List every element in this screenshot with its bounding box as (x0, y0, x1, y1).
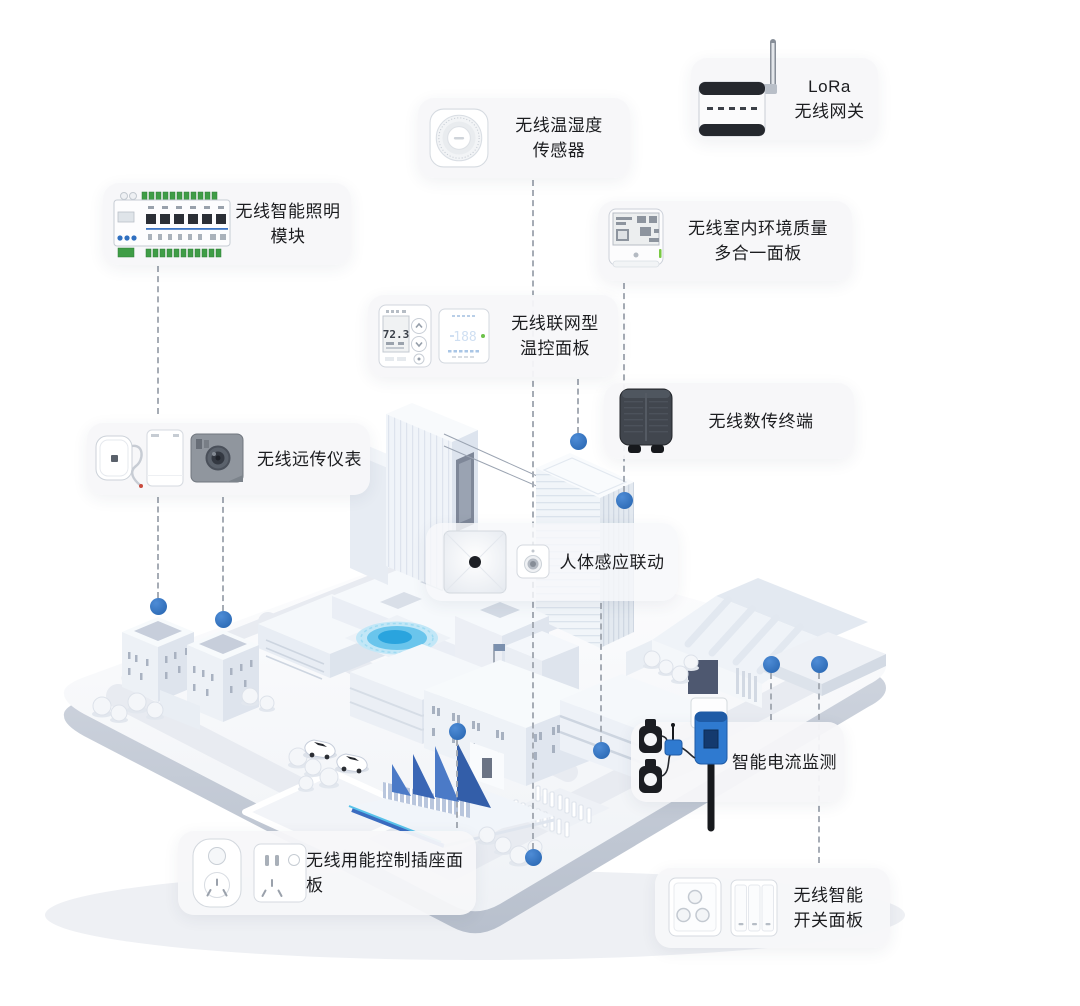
connector-humidity-sensor-drop (532, 180, 534, 849)
device-card-lighting-module: 无线智能照明 模块 (103, 183, 351, 265)
device-card-switch-panel: 无线智能 开关面板 (655, 868, 890, 948)
lora-gateway-device-icon (697, 36, 793, 140)
device-card-lora-gateway: LoRa 无线网关 (691, 58, 878, 140)
connector-presence-to-building (600, 603, 602, 742)
card-label-line2: 多合一面板 (714, 241, 802, 266)
card-label-line2: 开关面板 (794, 908, 864, 933)
rocker-switch-device-icon (729, 878, 779, 938)
presence-pir-sensor-icon (516, 543, 550, 579)
residential-blocks (122, 617, 259, 730)
node-dot-meter-to-building-b (215, 611, 232, 628)
school-building (350, 644, 602, 790)
device-card-thermostat-panels: 72.3 188 无线联网型 温控面板 (368, 295, 618, 377)
connector-meter-to-building-b (222, 497, 224, 611)
corridor-building (258, 594, 404, 679)
card-label: 无线智能 开关面板 (773, 868, 884, 948)
connector-meter-to-building-a (157, 497, 159, 598)
remote-meter-panel-device-icon (145, 428, 185, 488)
lighting-module-device-icon (111, 190, 233, 260)
smart-plug-device-icon (190, 837, 244, 909)
thermostat-device-b-icon: 188 (438, 308, 490, 364)
node-dot-current-to-warehouse (763, 656, 780, 673)
louver-structure (505, 786, 610, 837)
node-dot-meter-to-building-a (150, 598, 167, 615)
card-label: 无线用能控制插座面板 (306, 831, 470, 915)
node-dot-switch-to-yard (811, 656, 828, 673)
card-label: 智能电流监测 (731, 722, 838, 802)
school-entrance (482, 758, 492, 778)
node-dot-presence-to-building (593, 742, 610, 759)
card-label-line2: 模块 (271, 224, 306, 249)
card-label-line1: 无线用能控制插座面板 (306, 848, 470, 898)
node-dot-socket-to-building (449, 723, 466, 740)
warehouse-door (688, 660, 718, 694)
data-terminal-device-icon (618, 387, 674, 455)
thermostat-display-left: 72.3 (383, 328, 410, 341)
device-card-presence-linkage: 人体感应联动 (426, 523, 678, 601)
wall-socket-device-icon (252, 842, 308, 904)
card-label-line1: LoRa (808, 74, 851, 99)
card-label-line2: 传感器 (533, 138, 586, 163)
device-card-env-quality-panel: 无线室内环境质量 多合一面板 (598, 201, 852, 281)
cars (303, 740, 369, 774)
device-card-current-monitor: 智能电流监测 (631, 722, 844, 802)
connector-lighting-to-meter (157, 266, 159, 414)
device-card-data-terminal: 无线数传终端 (604, 383, 854, 459)
card-label-line2: 无线网关 (795, 99, 865, 124)
card-label: 无线智能照明 模块 (231, 183, 345, 265)
connector-thermostat-to-tower-roof (577, 379, 579, 433)
card-label-line1: 智能电流监测 (732, 750, 837, 775)
remote-meter-camera-device-icon (189, 431, 245, 485)
card-label: 无线温湿度 传感器 (494, 98, 624, 178)
card-label-line1: 无线智能照明 (236, 199, 341, 224)
card-label: 无线远传仪表 (255, 423, 364, 495)
connector-socket-to-building (456, 740, 458, 828)
connector-current-to-warehouse (770, 673, 772, 720)
node-dot-humidity-sensor-drop (525, 849, 542, 866)
card-label-line1: 无线联网型 (511, 311, 599, 336)
card-label-line1: 人体感应联动 (560, 550, 665, 575)
temp-humidity-sensor-device-icon (428, 107, 490, 169)
env-quality-panel-device-icon (607, 207, 665, 273)
midrise-cluster (455, 596, 579, 707)
yard-floor (764, 632, 886, 684)
node-dot-thermostat-to-tower-roof (570, 433, 587, 450)
device-card-remote-meter: 无线远传仪表 (87, 423, 370, 495)
smart-building-iot-diagram: LoRa 无线网关 无线温湿度 传感器 (0, 0, 1080, 1006)
thermostat-device-a-icon: 72.3 (378, 304, 432, 368)
card-label: 无线联网型 温控面板 (498, 295, 612, 377)
card-label-line1: 无线室内环境质量 (688, 216, 828, 241)
card-label: 无线室内环境质量 多合一面板 (670, 201, 846, 281)
card-label-line1: 无线智能 (794, 883, 864, 908)
card-label-line1: 无线远传仪表 (257, 447, 362, 472)
presence-ceiling-sensor-icon (442, 529, 508, 595)
flag (494, 644, 505, 651)
power-lines (444, 434, 546, 490)
card-label-line2: 温控面板 (520, 336, 590, 361)
card-label: 人体感应联动 (552, 523, 672, 601)
thermostat-display-right: 188 (453, 330, 476, 345)
device-card-socket-panel: 无线用能控制插座面板 (178, 831, 476, 915)
node-dot-env-panel-to-tower (616, 492, 633, 509)
scene-switch-device-icon (667, 875, 723, 939)
remote-meter-pulse-device-icon (94, 430, 144, 488)
card-label: 无线数传终端 (674, 383, 848, 459)
card-label-line1: 无线温湿度 (515, 113, 603, 138)
pool (345, 615, 451, 661)
card-label: LoRa 无线网关 (787, 58, 872, 140)
card-label-line1: 无线数传终端 (709, 409, 814, 434)
device-card-temp-humidity-sensor: 无线温湿度 传感器 (418, 98, 630, 178)
